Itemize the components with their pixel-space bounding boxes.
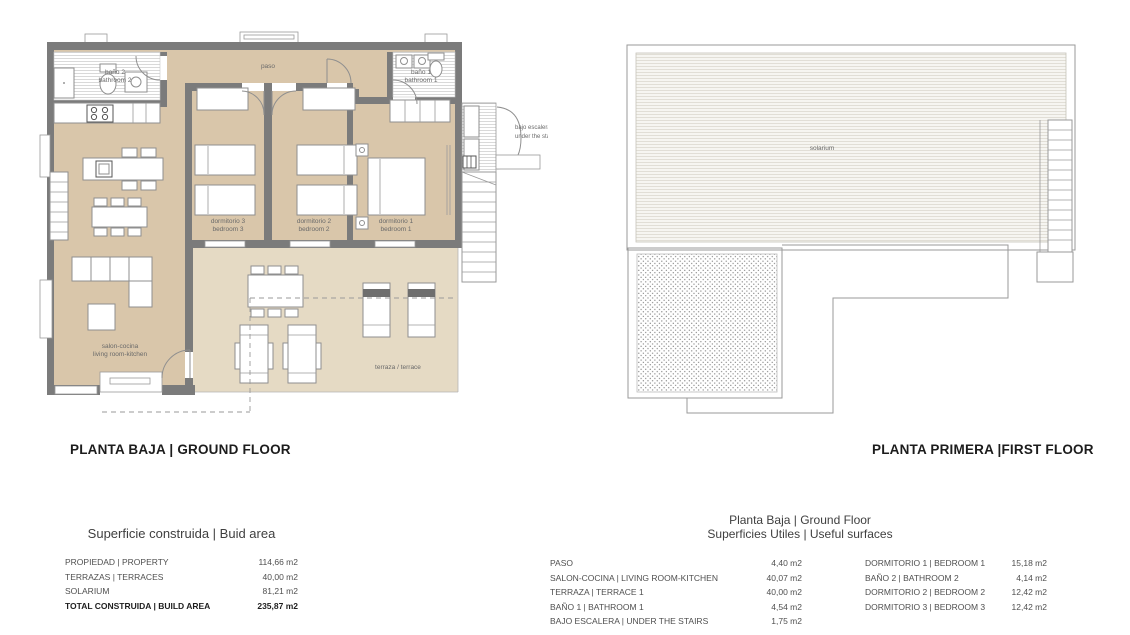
bathroom-2 — [54, 52, 160, 100]
table-row: SALON-COCINA | LIVING ROOM-KITCHEN 40,07… — [550, 571, 802, 586]
row-label: TERRAZA | TERRACE 1 — [550, 585, 746, 600]
table-row: PASO 4,40 m2 — [550, 556, 802, 571]
bedroom-3-furniture — [195, 88, 255, 215]
living-room-label-en: living room-kitchen — [93, 351, 148, 358]
row-value: 1,75 m2 — [746, 614, 802, 629]
build-area-table-rows: PROPIEDAD | PROPERTY 114,66 m2 TERRAZAS … — [65, 555, 298, 613]
table-row: SOLARIUM 81,21 m2 — [65, 584, 298, 599]
row-label: PROPIEDAD | PROPERTY — [65, 555, 234, 570]
bathroom1-label-en: bathroom 1 — [405, 77, 438, 84]
bathroom2-label-en: bathroom 2 — [99, 77, 132, 84]
row-value: 40,00 m2 — [234, 570, 298, 585]
row-value: 12,42 m2 — [995, 585, 1047, 600]
build-area-table-title: Superficie construida | Buid area — [65, 526, 298, 542]
bathroom-1 — [390, 52, 455, 122]
useful-surfaces-left-column: PASO 4,40 m2 SALON-COCINA | LIVING ROOM-… — [550, 556, 802, 629]
row-value: 40,00 m2 — [746, 585, 802, 600]
row-value: 15,18 m2 — [995, 556, 1047, 571]
ground-floor-title: PLANTA BAJA | GROUND FLOOR — [70, 442, 291, 457]
solarium-area — [627, 45, 1075, 250]
table-row: TERRAZAS | TERRACES 40,00 m2 — [65, 570, 298, 585]
useful-surfaces-title-line2: Superficies Utiles | Useful surfaces — [550, 528, 1050, 542]
under-stairs-label-en: under the stairs — [515, 134, 548, 140]
roof-bumps — [85, 32, 447, 43]
useful-surfaces-title-line1: Planta Baja | Ground Floor — [550, 514, 1050, 528]
solarium-label: solarium — [810, 145, 835, 152]
table-row-total: TOTAL CONSTRUIDA | BUILD AREA 235,87 m2 — [65, 599, 298, 614]
bedroom-2-furniture — [297, 88, 357, 215]
useful-surfaces-columns: PASO 4,40 m2 SALON-COCINA | LIVING ROOM-… — [550, 556, 1050, 629]
row-label: BAJO ESCALERA | UNDER THE STAIRS — [550, 614, 746, 629]
row-value: 40,07 m2 — [746, 571, 802, 586]
row-label: SOLARIUM — [65, 584, 234, 599]
useful-surfaces-right-column: DORMITORIO 1 | BEDROOM 1 15,18 m2 BAÑO 2… — [865, 556, 1047, 629]
row-label: DORMITORIO 1 | BEDROOM 1 — [865, 556, 995, 571]
table-row: BAÑO 2 | BATHROOM 2 4,14 m2 — [865, 571, 1047, 586]
first-floor-plan: solarium — [610, 30, 1090, 420]
exterior-stairs — [462, 155, 540, 282]
ground-floor-plan: baño 2 bathroom 2 paso baño 1 bathroom 1… — [38, 28, 548, 428]
row-value: 12,42 m2 — [995, 600, 1047, 615]
row-label: BAÑO 1 | BATHROOM 1 — [550, 600, 746, 615]
bedroom2-label-es: dormitorio 2 — [297, 218, 332, 225]
row-label: SALON-COCINA | LIVING ROOM-KITCHEN — [550, 571, 746, 586]
row-label: BAÑO 2 | BATHROOM 2 — [865, 571, 995, 586]
row-value: 4,54 m2 — [746, 600, 802, 615]
table-row: DORMITORIO 1 | BEDROOM 1 15,18 m2 — [865, 556, 1047, 571]
useful-surfaces-table: Planta Baja | Ground Floor Superficies U… — [550, 514, 1050, 629]
row-value: 114,66 m2 — [234, 555, 298, 570]
paso-label: paso — [261, 63, 275, 70]
terrace-label: terraza / terrace — [375, 364, 421, 371]
table-row: TERRAZA | TERRACE 1 40,00 m2 — [550, 585, 802, 600]
row-value: 235,87 m2 — [234, 599, 298, 614]
row-label: TERRAZAS | TERRACES — [65, 570, 234, 585]
table-row: DORMITORIO 3 | BEDROOM 3 12,42 m2 — [865, 600, 1047, 615]
bathroom2-label-es: baño 2 — [105, 69, 125, 76]
useful-surfaces-header: Planta Baja | Ground Floor Superficies U… — [550, 514, 1050, 541]
row-label: DORMITORIO 2 | BEDROOM 2 — [865, 585, 995, 600]
table-row: BAJO ESCALERA | UNDER THE STAIRS 1,75 m2 — [550, 614, 802, 629]
bathroom1-label-es: baño 1 — [411, 69, 431, 76]
first-floor-title: PLANTA PRIMERA |FIRST FLOOR — [872, 442, 1094, 457]
bedroom1-label-es: dormitorio 1 — [379, 218, 414, 225]
under-stairs-label-es: bajo escalera — [515, 125, 548, 131]
dining-table — [92, 198, 147, 236]
table-row: BAÑO 1 | BATHROOM 1 4,54 m2 — [550, 600, 802, 615]
row-value: 4,14 m2 — [995, 571, 1047, 586]
living-room-label-es: salon-cocina — [102, 343, 139, 350]
bedroom3-label-en: bedroom 3 — [212, 226, 243, 233]
pergola-area — [628, 248, 782, 398]
row-label: DORMITORIO 3 | BEDROOM 3 — [865, 600, 995, 615]
row-value: 81,21 m2 — [234, 584, 298, 599]
floor-plan-sheet: baño 2 bathroom 2 paso baño 1 bathroom 1… — [0, 0, 1130, 635]
bedroom1-label-en: bedroom 1 — [380, 226, 411, 233]
room-labels: solarium — [810, 145, 835, 152]
row-label: PASO — [550, 556, 746, 571]
table-row: PROPIEDAD | PROPERTY 114,66 m2 — [65, 555, 298, 570]
bedroom2-label-en: bedroom 2 — [298, 226, 329, 233]
row-label: TOTAL CONSTRUIDA | BUILD AREA — [65, 599, 234, 614]
row-value: 4,40 m2 — [746, 556, 802, 571]
bedroom3-label-es: dormitorio 3 — [211, 218, 246, 225]
build-area-table: Superficie construida | Buid area PROPIE… — [65, 526, 298, 613]
table-row: DORMITORIO 2 | BEDROOM 2 12,42 m2 — [865, 585, 1047, 600]
